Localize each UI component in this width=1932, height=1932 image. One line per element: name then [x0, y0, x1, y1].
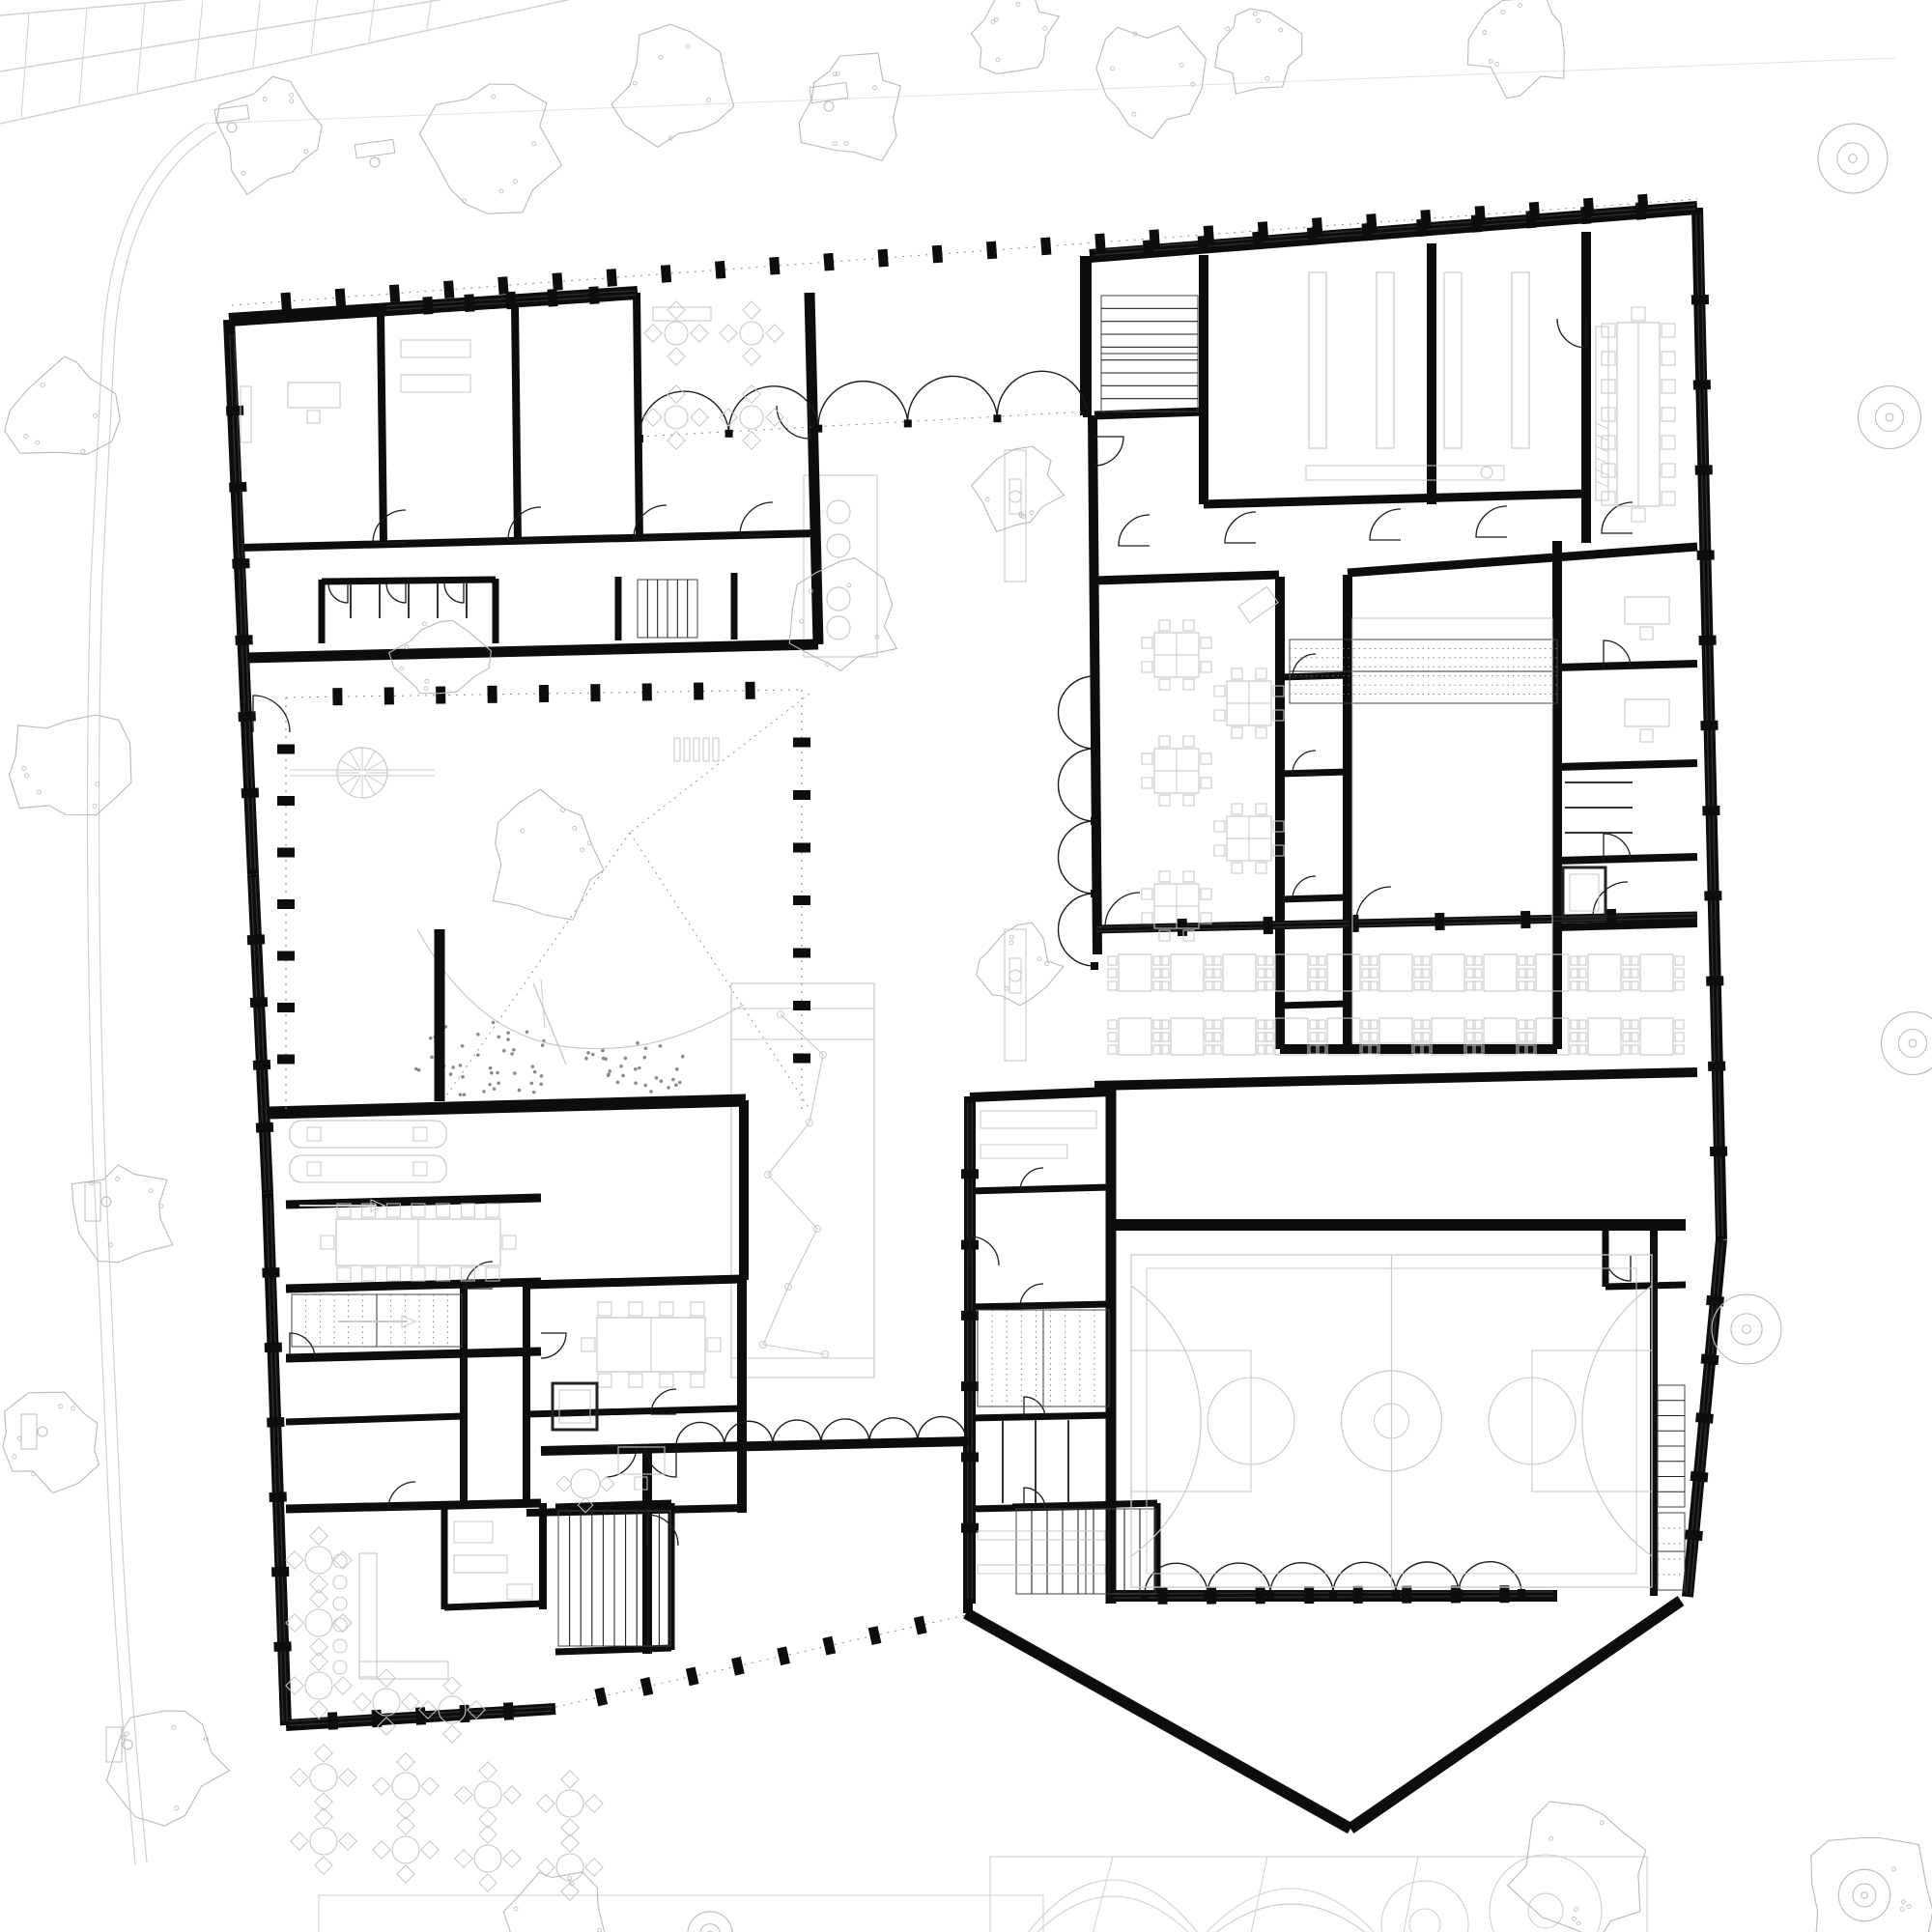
floor-plan-drawing — [0, 0, 1932, 1932]
facade-layer — [226, 194, 1727, 1730]
sports-court-layer — [1131, 1255, 1652, 1587]
playground-layer — [990, 1855, 1647, 1932]
trees-layer — [3, 0, 1932, 1932]
furniture-layer — [241, 272, 1684, 1900]
floor-plan-page — [0, 0, 1932, 1932]
